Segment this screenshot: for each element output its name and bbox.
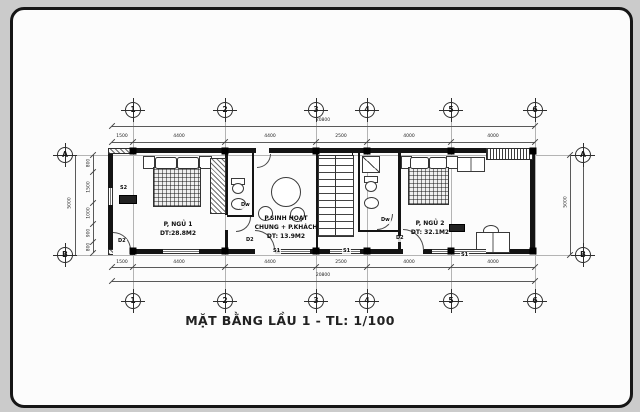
axis-bubble-left-B: B	[57, 247, 73, 263]
axis-label: 2	[222, 296, 227, 305]
dim-line-right	[570, 155, 571, 255]
room-label-bedroom1: P, NGỦ 1 DT:28.8M2	[160, 220, 196, 238]
axis-label: 1	[130, 296, 135, 305]
column	[530, 148, 537, 155]
axis-bubble-top-1: 1	[125, 102, 141, 118]
room-label-living: P.SINH HOẠT CHUNG + P.KHÁCH DT: 13.9M2	[255, 214, 318, 241]
column	[313, 248, 320, 255]
dim-bottom-5: 4000	[403, 260, 414, 265]
axis-bubble-top-5: 5	[443, 102, 459, 118]
floor-plan-page: { "canvas": {"bg": "#cbcbcb", "paper": "…	[0, 0, 640, 412]
axis-label: B	[580, 250, 586, 259]
dim-top-2: 4400	[173, 134, 184, 139]
axis-label: 1	[130, 105, 135, 114]
dim-left-3: 1000	[87, 207, 92, 218]
tag-window-S1-living: S1	[272, 249, 281, 255]
column	[130, 148, 137, 155]
room-area: DT: 32.1M2	[411, 228, 449, 237]
dim-line-top-total	[112, 126, 535, 127]
axis-bubble-top-4: 4	[359, 102, 375, 118]
axis-label: 6	[532, 105, 537, 114]
tag-window-S1-bed2: S1	[460, 253, 469, 259]
dim-bottom-6: 4000	[487, 260, 498, 265]
axis-label: 3	[313, 296, 318, 305]
axis-bubble-bottom-5: 5	[443, 293, 459, 309]
room-area: DT:28.8M2	[160, 229, 196, 238]
grid-line-B	[72, 255, 576, 256]
right-axis-line	[583, 155, 584, 255]
wall-bath2-bottom	[358, 230, 400, 232]
dim-bottom-1: 1500	[116, 260, 127, 265]
column	[222, 148, 229, 155]
axis-bubble-right-A: A	[575, 147, 591, 163]
bed-bedroom1	[153, 167, 201, 207]
dim-left-2: 1500	[87, 181, 92, 192]
column	[530, 248, 537, 255]
column	[222, 248, 229, 255]
dim-left-5: 800	[87, 243, 92, 252]
dim-bottom-total: 20800	[316, 273, 330, 278]
pillow	[429, 157, 447, 169]
left-axis-line	[75, 155, 76, 255]
tag-window-S2: S2	[119, 186, 128, 192]
dim-top-6: 4000	[487, 134, 498, 139]
tag-door-Dw-bath1: Dw	[240, 203, 251, 209]
dim-bottom-2: 4400	[173, 260, 184, 265]
wardrobe-bedroom1	[210, 158, 226, 214]
toilet-bowl	[232, 183, 244, 194]
cabinet-left-wall	[119, 195, 137, 204]
bed-bedroom2	[408, 167, 449, 205]
window-living-bottom	[280, 249, 310, 254]
axis-bubble-bottom-3: 3	[308, 293, 324, 309]
axis-bubble-bottom-2: 2	[217, 293, 233, 309]
tag-window-S1-stair: S1	[342, 249, 351, 255]
dim-right-total: 5000	[564, 196, 569, 207]
pillow	[410, 157, 429, 169]
axis-bubble-bottom-1: 1	[125, 293, 141, 309]
window-bed2-bottom	[432, 249, 486, 254]
column	[364, 148, 371, 155]
axis-bubble-left-A: A	[57, 147, 73, 163]
tag-door-D2-living: D2	[245, 238, 255, 244]
dim-bottom-3: 4400	[264, 260, 275, 265]
dim-top-total: 20800	[316, 118, 330, 123]
dim-bottom-4: 2500	[335, 260, 346, 265]
room-name: P.SINH HOẠT	[255, 214, 318, 223]
staircase	[318, 155, 354, 237]
axis-label: 4	[364, 296, 369, 305]
vent-window-top-right	[486, 148, 533, 160]
dim-top-3: 4400	[264, 134, 275, 139]
axis-bubble-bottom-6: 6	[527, 293, 543, 309]
window-S2-left	[108, 188, 113, 205]
dim-left-total: 5000	[68, 197, 73, 208]
dim-top-5: 4000	[403, 134, 414, 139]
room-area: DT: 13.9M2	[255, 232, 318, 241]
axis-label: 4	[364, 105, 369, 114]
tag-door-Dw-bath2: Dw	[380, 218, 391, 224]
axis-label: 5	[448, 296, 453, 305]
shower	[362, 156, 380, 173]
sink	[364, 197, 379, 209]
round-table	[271, 177, 301, 207]
room-name: P, NGỦ 1	[160, 220, 196, 229]
dim-left-4: 900	[87, 229, 92, 238]
dim-line-bottom-segments	[112, 267, 535, 268]
axis-bubble-top-2: 2	[217, 102, 233, 118]
axis-label: 2	[222, 105, 227, 114]
axis-label: A	[62, 150, 68, 159]
pillow	[155, 157, 177, 169]
toilet-bowl	[365, 181, 377, 192]
axis-label: A	[580, 150, 586, 159]
wall-top	[108, 148, 535, 153]
dim-top-1: 1500	[116, 134, 127, 139]
axis-bubble-top-6: 6	[527, 102, 543, 118]
column	[448, 148, 455, 155]
window-bed1-bottom	[163, 249, 199, 254]
tag-door-D2-bed2: D2	[395, 236, 405, 242]
column	[130, 248, 137, 255]
axis-label: 3	[313, 105, 318, 114]
axis-label: 6	[532, 296, 537, 305]
dim-line-bottom-total	[112, 281, 535, 282]
wall-bath2-left	[358, 153, 360, 232]
dim-left-1: 800	[87, 159, 92, 168]
tag-door-D2-bed1: D2	[117, 239, 127, 245]
wall-living-left	[252, 153, 254, 217]
column	[364, 248, 371, 255]
dim-line-top-segments	[112, 142, 535, 143]
axis-label: B	[62, 250, 68, 259]
room-label-bedroom2: P, NGỦ 2 DT: 32.1M2	[411, 219, 449, 237]
axis-bubble-top-3: 3	[308, 102, 324, 118]
stair-rail	[335, 155, 336, 235]
room-name-2: CHUNG + P.KHÁCH	[255, 223, 318, 232]
axis-bubble-bottom-4: 4	[359, 293, 375, 309]
column	[313, 148, 320, 155]
pillow	[177, 157, 199, 169]
dim-top-4: 2500	[335, 134, 346, 139]
axis-label: 5	[448, 105, 453, 114]
column	[448, 248, 455, 255]
wall-right	[530, 148, 535, 254]
door-gap-top	[256, 147, 269, 154]
dresser-bedroom2	[457, 157, 485, 172]
room-name: P, NGỦ 2	[411, 219, 449, 228]
cabinet-bedroom2	[449, 224, 465, 232]
drawing-title: MẶT BẰNG LẦU 1 - TL: 1/100	[185, 313, 395, 328]
axis-bubble-right-B: B	[575, 247, 591, 263]
